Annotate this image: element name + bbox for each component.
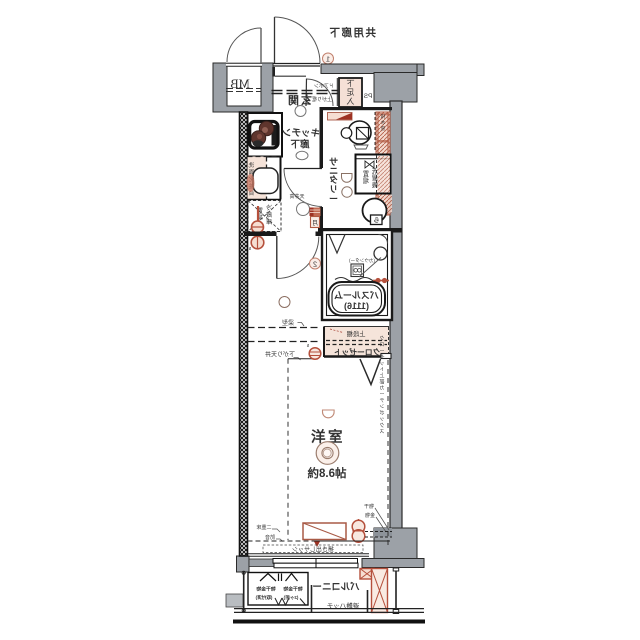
svg-text:管: 管	[380, 125, 385, 132]
svg-text:月: 月	[312, 220, 318, 227]
svg-text:リ: リ	[329, 185, 338, 195]
svg-text:防音: 防音	[265, 534, 275, 541]
svg-text:ロ: ロ	[379, 342, 384, 348]
svg-text:タ: タ	[329, 174, 338, 185]
svg-text:物干: 物干	[364, 503, 374, 510]
svg-text:水: 水	[380, 119, 385, 125]
svg-text:ー: ー	[379, 392, 384, 398]
svg-text:足: 足	[347, 88, 355, 97]
svg-text:(2ヶ所): (2ヶ所)	[283, 594, 298, 601]
svg-text:2: 2	[313, 260, 317, 269]
svg-text:廊下: 廊下	[290, 139, 310, 151]
svg-text:カ: カ	[379, 386, 384, 392]
svg-text:下がり天井: 下がり天井	[265, 351, 295, 359]
svg-text:上: 上	[379, 372, 384, 379]
svg-text:ッ: ッ	[379, 417, 384, 423]
svg-text:機: 機	[371, 180, 378, 189]
svg-text:ー: ー	[379, 348, 384, 354]
svg-text:ス: ス	[379, 429, 384, 435]
svg-text:庫: 庫	[266, 218, 272, 226]
svg-text:物干金物: 物干金物	[256, 586, 275, 593]
svg-text:バスルーム: バスルーム	[334, 291, 379, 301]
svg-text:掃き出しサッシ: 掃き出しサッシ	[292, 546, 334, 554]
svg-text:ボ: ボ	[379, 409, 384, 416]
svg-text:ら: ら	[373, 218, 379, 225]
svg-text:テ: テ	[379, 398, 384, 404]
svg-text:玄関: 玄関	[286, 93, 312, 107]
svg-text:部: 部	[379, 378, 384, 385]
svg-text:(1116): (1116)	[344, 301, 369, 311]
svg-text:冷: 冷	[266, 204, 272, 212]
svg-text:(カウンター): (カウンター)	[349, 257, 375, 264]
svg-text:ー: ー	[329, 194, 338, 204]
svg-text:ト: ト	[379, 367, 384, 373]
svg-text:ゼ: ゼ	[379, 354, 384, 361]
svg-text:ッ: ッ	[379, 361, 384, 367]
svg-text:梁型: 梁型	[282, 319, 294, 327]
svg-text:天井高: 天井高	[289, 193, 304, 200]
svg-text:ク: ク	[379, 336, 384, 342]
svg-text:置: 置	[363, 170, 369, 178]
svg-text:クローゼット: クローゼット	[334, 347, 381, 357]
svg-text:ドアホン: ドアホン	[314, 84, 334, 90]
svg-text:ン: ン	[379, 404, 384, 410]
svg-text:共用廊下: 共用廊下	[328, 26, 376, 39]
svg-text:蔵: 蔵	[266, 211, 272, 219]
svg-text:バルコニー: バルコニー	[312, 581, 359, 593]
svg-text:上がり框: 上がり框	[312, 96, 332, 103]
svg-text:ク: ク	[379, 423, 384, 429]
svg-text:キッチン: キッチン	[282, 128, 320, 139]
svg-text:洗: 洗	[371, 166, 378, 175]
svg-text:場: 場	[362, 176, 369, 185]
svg-text:約8.6帖: 約8.6帖	[308, 466, 347, 480]
svg-text:上段棚: 上段棚	[347, 329, 366, 338]
svg-text:(取付済): (取付済)	[255, 594, 272, 601]
svg-text:PS: PS	[363, 93, 372, 100]
svg-text:洗: 洗	[248, 161, 254, 169]
svg-text:二重床: 二重床	[256, 524, 271, 531]
svg-text:下: 下	[347, 79, 355, 88]
svg-text:金物: 金物	[365, 512, 375, 519]
svg-text:排: 排	[380, 113, 385, 120]
svg-text:物干金物: 物干金物	[283, 586, 302, 593]
svg-text:入: 入	[347, 97, 355, 106]
svg-text:1: 1	[326, 55, 330, 64]
svg-text:濯: 濯	[372, 173, 378, 182]
